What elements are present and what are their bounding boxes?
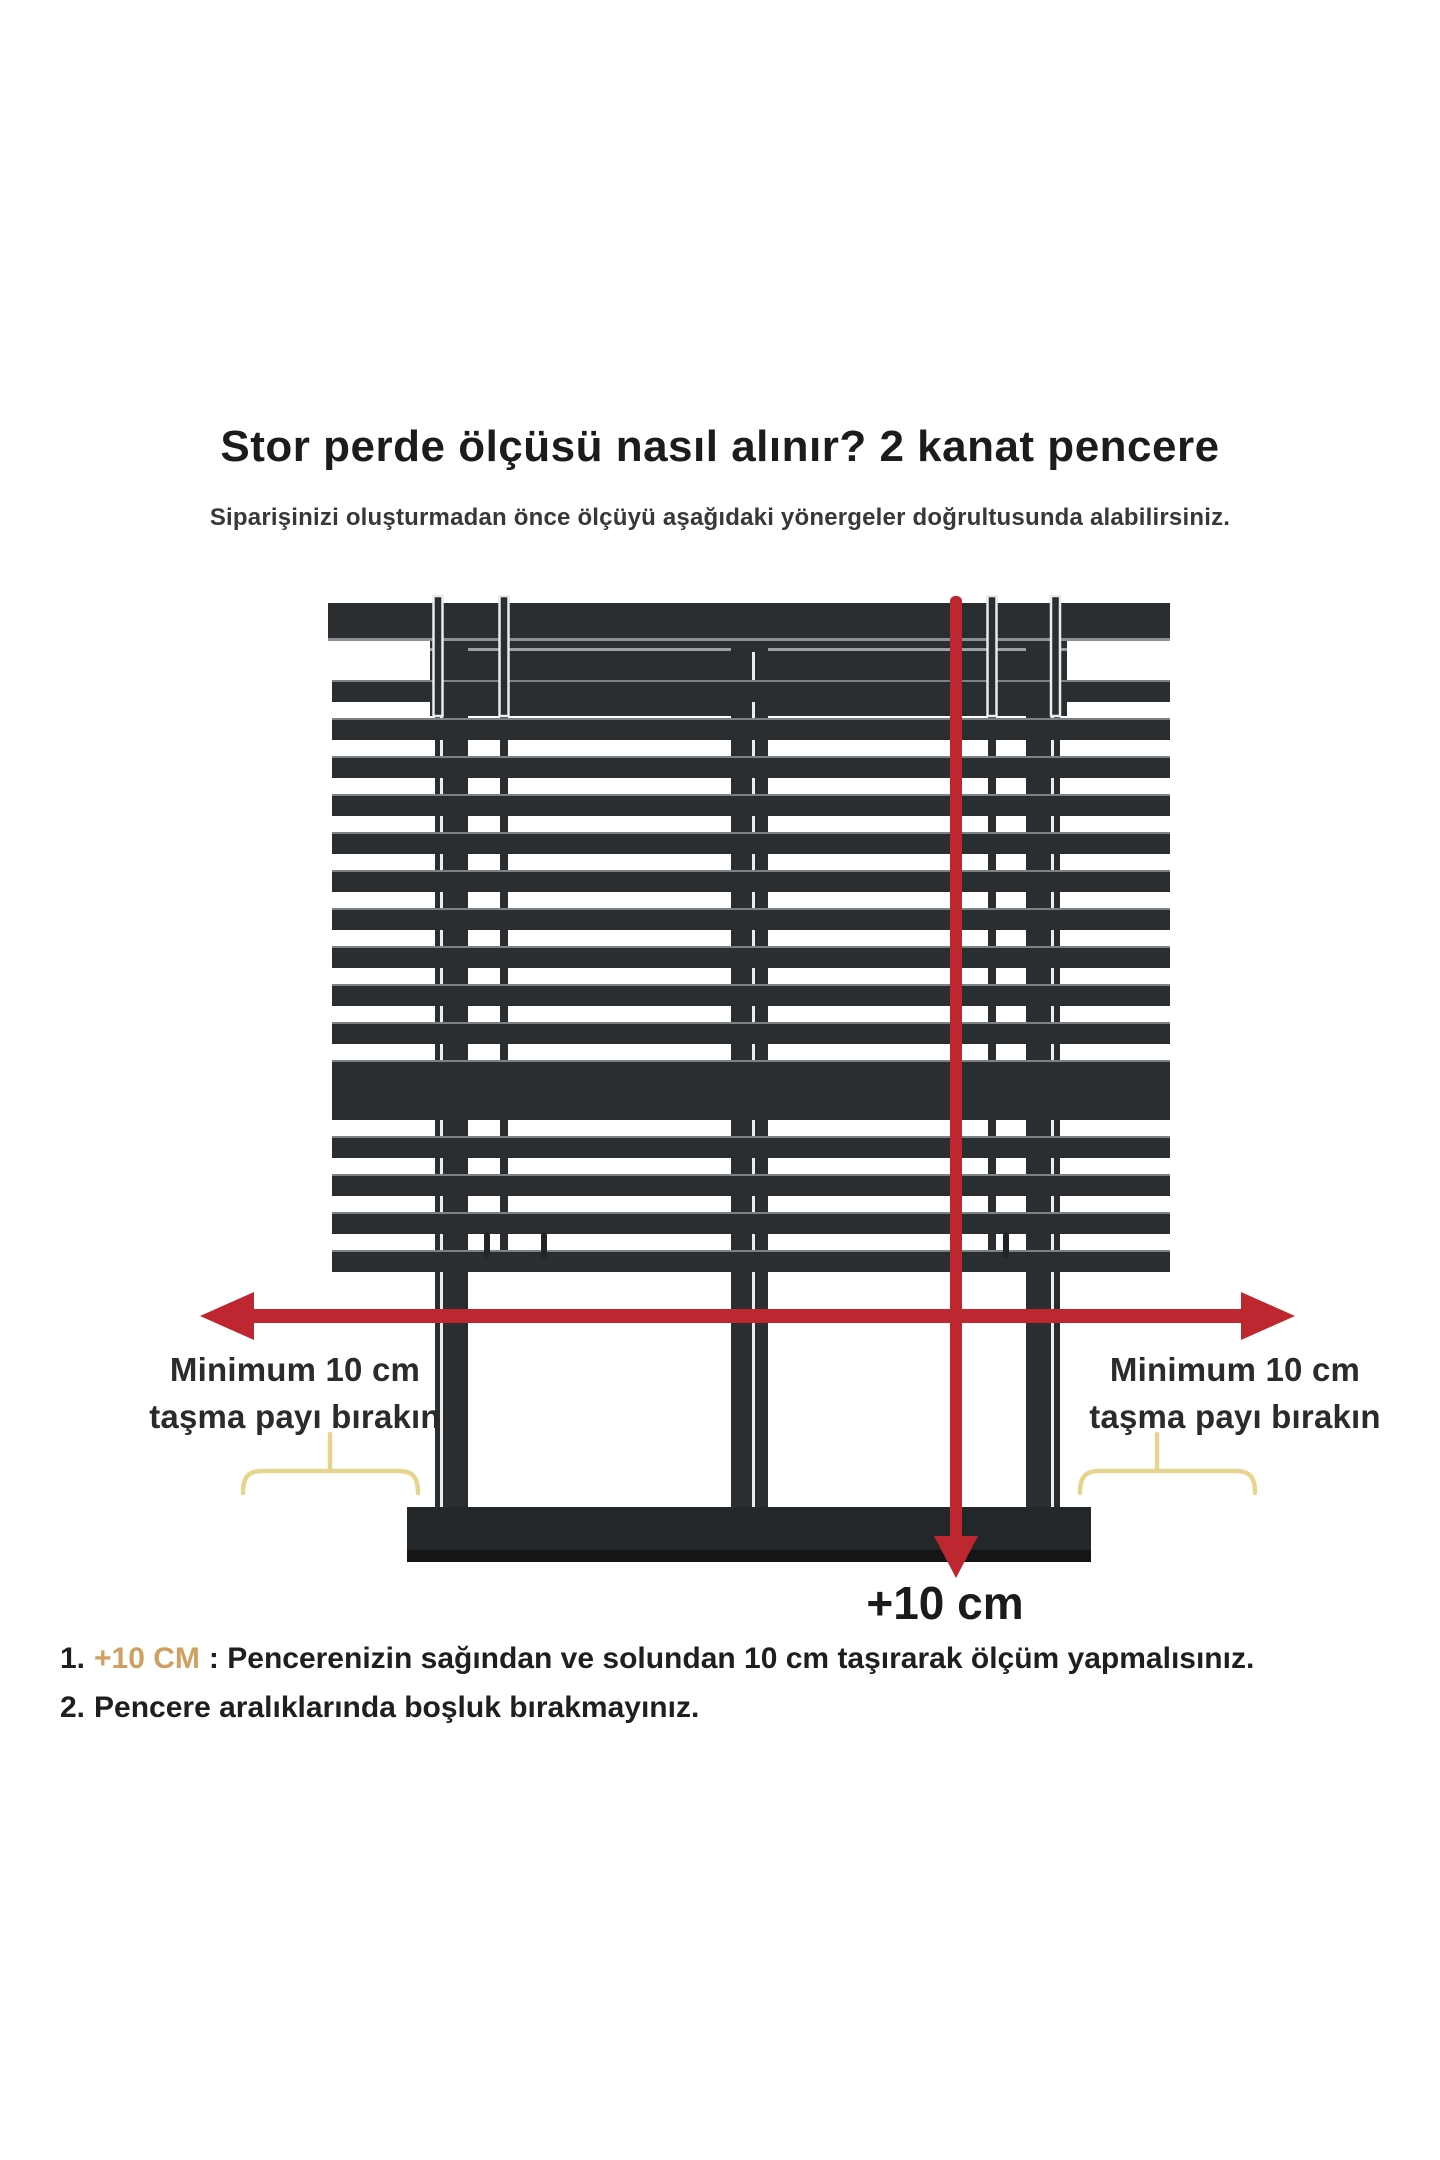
blind-header [328, 603, 1170, 641]
instruction-item: 2.Pencere aralıklarında boşluk bırakmayı… [60, 1691, 1420, 1725]
left-overhang-brace [243, 1434, 418, 1493]
measurement-guide-page: { "header": { "title": "Stor perde ölçüs… [0, 0, 1440, 2160]
window-sill [407, 1507, 1091, 1562]
meeting-rail-band [332, 1078, 1170, 1102]
instruction-text: : Pencerenizin sağından ve solundan 10 c… [209, 1642, 1254, 1675]
right-overhang-brace [1080, 1434, 1255, 1493]
bottom-measure-label: +10 cm [795, 1576, 1095, 1630]
blind-slats [332, 680, 1170, 1272]
right-overhang-label-line2: taşma payı bırakın [1068, 1393, 1402, 1440]
left-overhang-label: Minimum 10 cm taşma payı bırakın [128, 1346, 462, 1440]
instructions-list: 1.+10 CM: Pencerenizin sağından ve solun… [60, 1642, 1420, 1740]
right-overhang-label-line1: Minimum 10 cm [1068, 1346, 1402, 1393]
instruction-number: 1. [60, 1642, 85, 1675]
instruction-item: 1.+10 CM: Pencerenizin sağından ve solun… [60, 1642, 1420, 1676]
window-blind-diagram [0, 0, 1440, 2160]
left-overhang-label-line1: Minimum 10 cm [128, 1346, 462, 1393]
left-overhang-label-line2: taşma payı bırakın [128, 1393, 462, 1440]
right-overhang-label: Minimum 10 cm taşma payı bırakın [1068, 1346, 1402, 1440]
instruction-highlight: +10 CM [94, 1642, 200, 1675]
instruction-text: Pencere aralıklarında boşluk bırakmayını… [94, 1691, 699, 1724]
instruction-number: 2. [60, 1691, 85, 1724]
